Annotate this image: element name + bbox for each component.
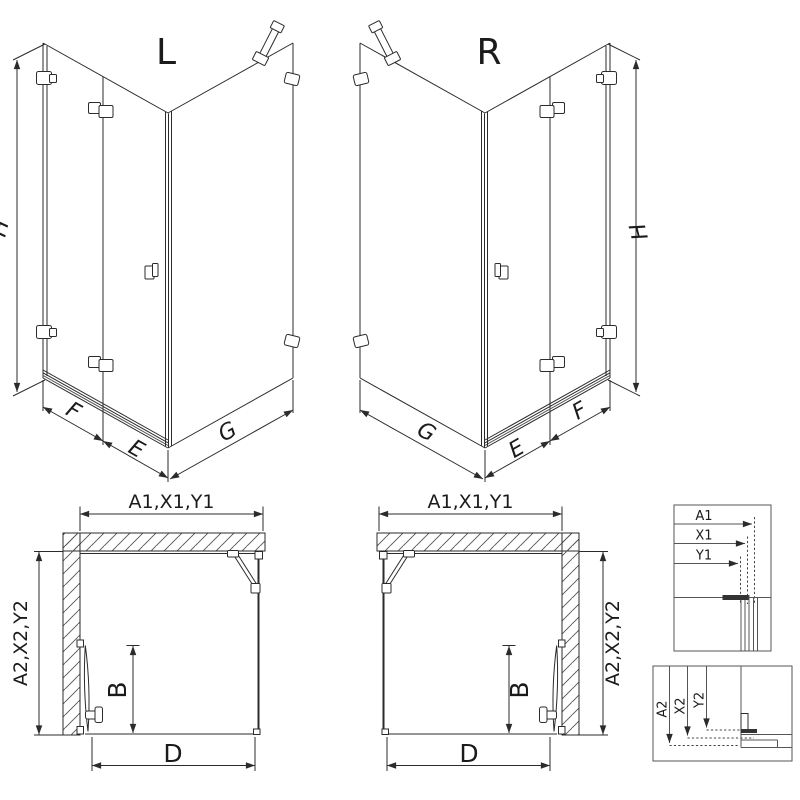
wall-top-hatched <box>63 533 265 551</box>
detail-label-x1: X1 <box>695 529 712 544</box>
dim-label-side-left: G <box>214 417 241 447</box>
wall-top-hatched <box>377 533 579 551</box>
iso-view-left: L H F E G <box>0 20 300 482</box>
shower-enclosure-dimension-diagram: L H F E G R H G E F A1,X1,Y1 A2,X2,Y2 B … <box>0 0 800 800</box>
wall-side-hatched <box>562 533 579 735</box>
detail-label-y1: Y1 <box>695 549 712 564</box>
dim-label-height-right: H <box>626 221 654 243</box>
dim-label-side-right: G <box>413 417 440 447</box>
detail-label-y2: Y2 <box>693 692 708 709</box>
wall-side-hatched <box>63 533 80 735</box>
dim-label-width-combo-left: A1,X1,Y1 <box>129 491 215 513</box>
dim-label-door-right: E <box>505 435 529 464</box>
inset-frame <box>674 505 771 651</box>
variant-label-left: L <box>156 32 176 73</box>
dim-label-door-projection-left: B <box>103 681 132 698</box>
dim-label-door-projection-right: B <box>505 681 534 698</box>
variant-label-right: R <box>476 32 501 73</box>
depth-detail-inset: A2 X2 Y2 <box>653 666 792 761</box>
plan-view-right: A1,X1,Y1 A2,X2,Y2 B D <box>377 491 624 771</box>
dim-label-fixed-right: F <box>568 397 592 425</box>
iso-view-right: R H G E F <box>353 20 654 482</box>
profile-section <box>741 714 748 730</box>
detail-label-x2: X2 <box>674 697 689 714</box>
dim-label-width-combo-right: A1,X1,Y1 <box>428 491 514 513</box>
width-detail-inset: A1 X1 Y1 <box>674 505 771 651</box>
detail-label-a1: A1 <box>695 509 712 524</box>
dim-label-height-left: H <box>0 217 15 239</box>
dim-label-fixed-left: F <box>62 397 86 425</box>
dim-label-entry-width-right: D <box>459 739 478 768</box>
dim-label-door-left: E <box>124 435 148 464</box>
dim-label-depth-combo-left: A2,X2,Y2 <box>10 600 32 686</box>
detail-label-a2: A2 <box>656 700 671 717</box>
dim-label-entry-width-left: D <box>163 739 182 768</box>
dim-label-depth-combo-right: A2,X2,Y2 <box>602 600 624 686</box>
plan-view-left: A1,X1,Y1 A2,X2,Y2 B D <box>10 491 265 771</box>
profile-section <box>723 595 749 600</box>
